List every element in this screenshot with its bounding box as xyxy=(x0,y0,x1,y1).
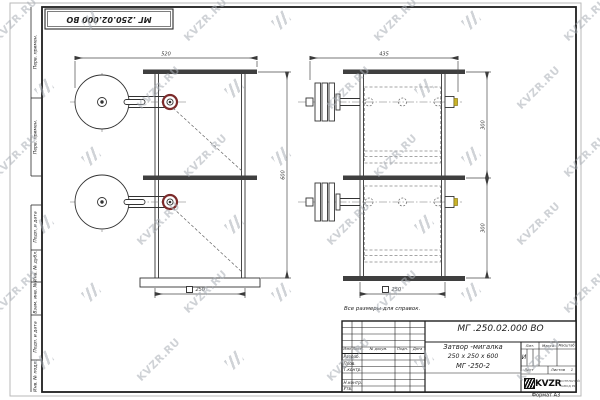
kvzr-logo-sub2: ЗАВОД РФ xyxy=(560,384,576,388)
designation: МГ .250.02.000 ВО xyxy=(425,325,576,334)
flap-hidden-outline xyxy=(365,87,441,163)
corner-stamp-text: МГ .250.02.000 ВО xyxy=(66,15,151,23)
front-mid-flange xyxy=(143,176,257,181)
flap-hidden-outline xyxy=(365,186,441,262)
front-lever-2 xyxy=(70,175,242,272)
row-prov: Пров. xyxy=(344,362,356,366)
side-column-label: Инв. № подл. xyxy=(34,360,39,392)
square-section-symbol xyxy=(382,286,389,293)
row-nkontr: Н.контр. xyxy=(344,381,363,385)
bushing xyxy=(454,99,458,106)
bushing xyxy=(454,199,458,206)
col-izm: Изм xyxy=(343,349,350,353)
reference-note: Все размеры для справок. xyxy=(344,307,420,313)
row-tkontr: Т.контр. xyxy=(344,368,362,372)
dim-front-width: 520 xyxy=(161,53,171,58)
weight-disc xyxy=(329,183,335,221)
flap-open-position xyxy=(173,108,242,171)
format-label: Формат А3 xyxy=(532,393,560,398)
dim-side-width: 435 xyxy=(379,53,389,58)
mass-label: Масса xyxy=(542,344,554,348)
side-top-flange xyxy=(343,70,465,75)
dim-side-section1: 300 xyxy=(482,120,487,130)
col-podp: Подп. xyxy=(397,349,408,353)
col-list: Лист xyxy=(352,349,361,353)
drawing-sheet: МГ .250.02.000 ВО Перв. примен. Перв. пр… xyxy=(0,0,600,400)
square-section-symbol xyxy=(186,286,193,293)
lit-value: И xyxy=(522,355,527,361)
flap-open-position xyxy=(173,208,242,272)
sheets-value: 1 xyxy=(571,368,573,372)
side-bottom-flange xyxy=(343,276,465,281)
drawing-svg xyxy=(0,0,600,400)
sheets-label: Листов xyxy=(551,368,565,372)
kvzr-logo-text: KVZR xyxy=(535,379,561,389)
side-column-label: Взам. инв. № xyxy=(34,282,39,313)
side-column-label: Подп. и дата xyxy=(34,211,39,242)
weight-disc xyxy=(329,83,335,121)
col-data: Дата xyxy=(413,349,422,353)
front-view xyxy=(70,70,260,288)
weight-disc xyxy=(315,83,321,121)
product-name: Затвор -мигалка xyxy=(425,344,521,351)
sheet-label: Лист xyxy=(524,368,534,372)
weight-disc xyxy=(315,183,321,221)
side-shaft-2 xyxy=(298,183,462,262)
front-lever-1 xyxy=(70,73,242,171)
product-size: 250 x 250 x 600 xyxy=(425,354,521,360)
row-utv: Утв. xyxy=(344,387,353,391)
product-code: МГ -250-2 xyxy=(425,363,521,370)
col-ndok: № докум. xyxy=(370,349,388,353)
side-shaft-1 xyxy=(298,83,462,163)
side-column-label: Подп. и дата xyxy=(34,321,39,352)
dim-front-bottom: 250 xyxy=(186,286,205,293)
kvzr-logo-sub1: КОТЕЛЬНЫЙ xyxy=(560,379,580,383)
weight-disc xyxy=(322,183,328,221)
dim-side-bottom: 250 xyxy=(382,286,401,293)
side-mid-flange xyxy=(343,176,465,181)
side-view xyxy=(298,70,465,282)
side-column-label: Перв. примен. xyxy=(34,35,39,70)
row-razrab: Разраб. xyxy=(344,355,360,359)
dim-front-height: 600 xyxy=(282,170,287,180)
scale-label: Масштаб xyxy=(558,344,574,347)
weight-disc xyxy=(322,83,328,121)
kvzr-logo-icon xyxy=(524,378,535,389)
front-top-flange xyxy=(143,70,257,75)
dim-side-section2: 300 xyxy=(482,223,487,233)
side-column-label: Инв. № дубл. xyxy=(34,250,39,281)
lit-label: Лит. xyxy=(526,344,535,348)
side-column-label: Перв. примен. xyxy=(34,120,39,155)
